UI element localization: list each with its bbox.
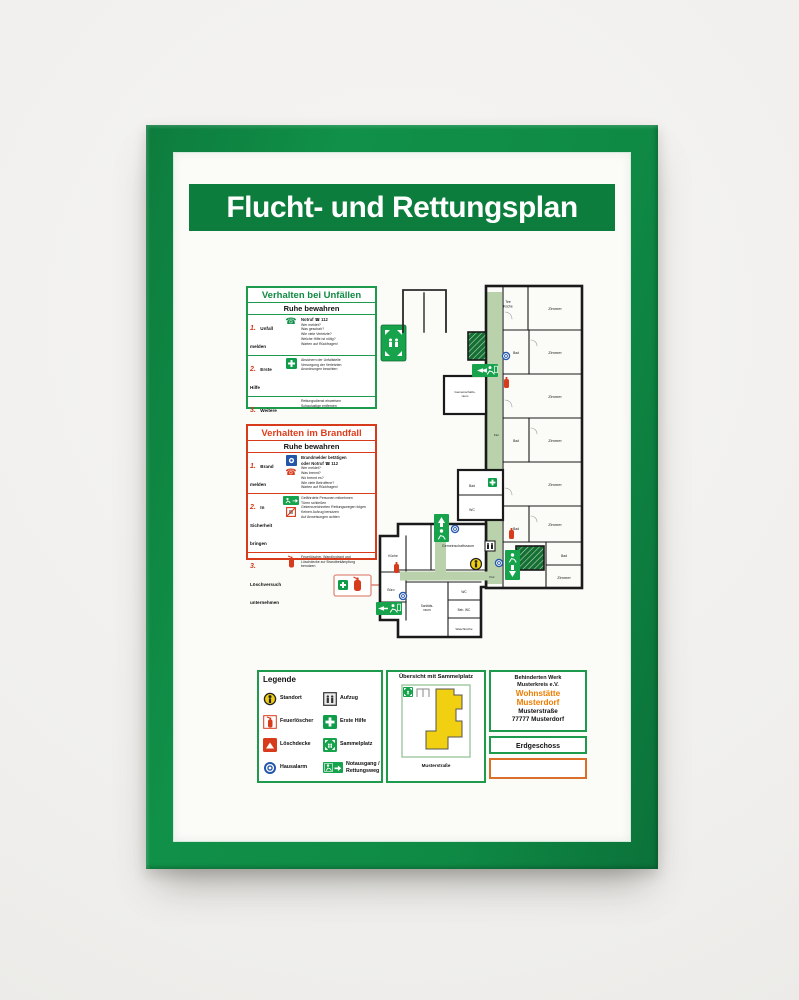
- site-name-1: Wohnstätte: [491, 689, 585, 699]
- svg-text:Bad: Bad: [513, 439, 519, 443]
- floor-plan: Tee Küche Zimmer Bad Zimmer Zimmer Bad Z…: [333, 280, 593, 652]
- legend-item-loeschdecke: Löschdecke: [263, 733, 321, 756]
- door-arcs: [505, 312, 537, 522]
- first-aid-icon: [338, 580, 348, 590]
- exit-sign-up: [434, 514, 449, 542]
- phone-icon: ☎: [285, 317, 296, 326]
- staircase-upper: [468, 332, 486, 360]
- overview-title: Übersicht mit Sammelplatz: [390, 674, 482, 680]
- first-aid-icon: [323, 715, 337, 729]
- legend-title: Legende: [263, 675, 377, 684]
- street-label: Musterstraße: [390, 763, 482, 768]
- building-footprint: [426, 689, 462, 749]
- assembly-point-icon: [323, 738, 337, 752]
- step-number: 2.: [250, 504, 256, 511]
- svg-text:Zimmer: Zimmer: [548, 482, 562, 487]
- legend-item-standort: Standort: [263, 687, 321, 710]
- legend-item-hausalarm: Hausalarm: [263, 756, 321, 779]
- legend-item-sammelplatz: Sammelplatz: [323, 733, 383, 756]
- svg-text:Zimmer: Zimmer: [548, 522, 562, 527]
- first-aid-icon: [488, 478, 497, 487]
- svg-text:Büro: Büro: [387, 588, 394, 592]
- address-box: Behinderten Werk Musterkreis e.V. Wohnst…: [489, 670, 587, 732]
- staircase-lower: [516, 546, 544, 570]
- phone-icon: ☎: [285, 468, 296, 477]
- svg-text:Bad: Bad: [513, 527, 519, 531]
- svg-text:Zimmer: Zimmer: [548, 438, 562, 443]
- you-are-here-icon: [471, 559, 482, 570]
- svg-text:Küche: Küche: [388, 554, 398, 558]
- site-name-2: Musterdorf: [491, 698, 585, 708]
- exit-sign-left-upper: [472, 364, 498, 377]
- svg-text:raum: raum: [462, 394, 469, 398]
- fire-call-point-icon: [286, 455, 297, 466]
- svg-text:Beh. WC: Beh. WC: [458, 608, 471, 612]
- svg-text:WC: WC: [469, 508, 475, 512]
- legend-panel: Legende Standort Feuerlöscher: [257, 670, 383, 783]
- svg-text:Tee: Tee: [505, 300, 511, 304]
- svg-text:Zimmer: Zimmer: [548, 394, 562, 399]
- elevator-icon: [485, 541, 495, 551]
- step-number: 1.: [250, 325, 256, 332]
- exit-sign-down: [505, 550, 520, 580]
- exit-sign-left-lower: [376, 602, 402, 615]
- house-alarm-icon: [263, 761, 277, 775]
- legend-item-notausgang: Notausgang / Rettungsweg: [323, 756, 383, 779]
- step-label: In Sicherheit bringen: [250, 505, 272, 546]
- plan-title-banner: Flucht- und Rettungsplan: [189, 184, 615, 231]
- site-overview-panel: Übersicht mit Sammelplatz Musterstraße: [386, 670, 486, 783]
- svg-text:Waschküche: Waschküche: [455, 627, 472, 631]
- product-photo: Flucht- und Rettungsplan Verhalten bei U…: [0, 0, 799, 1000]
- svg-text:Zimmer: Zimmer: [548, 306, 562, 311]
- address-street: Musterstraße: [491, 708, 585, 716]
- svg-text:WC: WC: [461, 590, 467, 594]
- plan-title: Flucht- und Rettungsplan: [226, 191, 577, 224]
- svg-text:Bad: Bad: [469, 484, 475, 488]
- site-map: [390, 681, 482, 763]
- you-are-here-icon: [263, 692, 277, 706]
- elevator-icon: [323, 692, 337, 706]
- blank-field: [489, 758, 587, 779]
- svg-text:Flur: Flur: [489, 575, 494, 579]
- escape-plan-document: Flucht- und Rettungsplan Verhalten bei U…: [173, 152, 631, 842]
- org-line-2: Musterkreis e.V.: [491, 682, 585, 689]
- address-block: Behinderten Werk Musterkreis e.V. Wohnst…: [489, 670, 587, 783]
- green-document-frame: Flucht- und Rettungsplan Verhalten bei U…: [146, 125, 658, 869]
- org-line-1: Behinderten Werk: [491, 675, 585, 682]
- svg-text:raum: raum: [423, 608, 431, 612]
- svg-text:Flur: Flur: [494, 433, 499, 437]
- step-label: Löschversuch unternehmen: [250, 582, 281, 605]
- legend-item-aufzug: Aufzug: [323, 687, 383, 710]
- svg-text:Bad: Bad: [561, 554, 567, 558]
- floor-label: Erdgeschoss: [489, 736, 587, 754]
- step-number: 1.: [250, 463, 256, 470]
- legend-item-feuerloescher: Feuerlöscher: [263, 710, 321, 733]
- no-elevator-icon: [286, 507, 296, 517]
- fire-extinguisher-icon: [287, 555, 296, 568]
- assembly-point-icon: [403, 687, 413, 697]
- step-number: 3.: [250, 563, 256, 570]
- neighbour-building-outline: [417, 689, 429, 697]
- svg-text:Küche: Küche: [503, 305, 513, 309]
- emergency-exit-icon: [283, 496, 299, 505]
- svg-text:Bad: Bad: [513, 351, 519, 355]
- step-number: 2.: [250, 366, 256, 373]
- emergency-exit-icon: [323, 762, 343, 773]
- svg-text:Zimmer: Zimmer: [548, 350, 562, 355]
- fire-blanket-icon: [263, 738, 277, 752]
- svg-text:Zimmer: Zimmer: [557, 575, 571, 580]
- legend-item-erste-hilfe: Erste Hilfe: [323, 710, 383, 733]
- step-number: 3.: [250, 407, 256, 414]
- fire-extinguisher-icon: [263, 715, 277, 729]
- address-city: 77777 Musterdorf: [491, 716, 585, 724]
- svg-text:Gemeinschaftsraum: Gemeinschaftsraum: [442, 544, 474, 548]
- first-aid-icon: [286, 358, 297, 369]
